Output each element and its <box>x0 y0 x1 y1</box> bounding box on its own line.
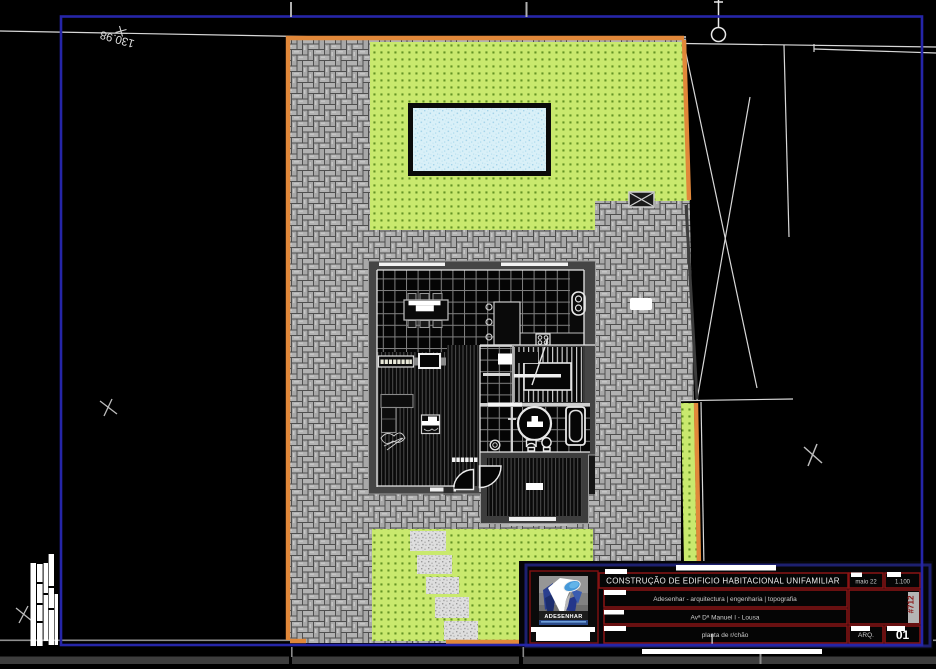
svg-text:planta de r/chão: planta de r/chão <box>702 632 749 639</box>
svg-text:ADESENHAR: ADESENHAR <box>544 614 582 620</box>
svg-text:Adesenhar - arquitectura | eng: Adesenhar - arquitectura | engenharia | … <box>653 596 797 603</box>
svg-text:CONSTRUÇÃO DE EDIFICIO HABITAC: CONSTRUÇÃO DE EDIFICIO HABITACIONAL UNIF… <box>606 577 840 586</box>
svg-text:Avª Dª Manuel I - Lousa: Avª Dª Manuel I - Lousa <box>690 615 759 622</box>
svg-text:1.100: 1.100 <box>895 580 911 586</box>
svg-text:ARQ.: ARQ. <box>858 632 874 639</box>
svg-text:maio 22: maio 22 <box>855 580 877 586</box>
svg-text:#712: #712 <box>907 595 916 613</box>
